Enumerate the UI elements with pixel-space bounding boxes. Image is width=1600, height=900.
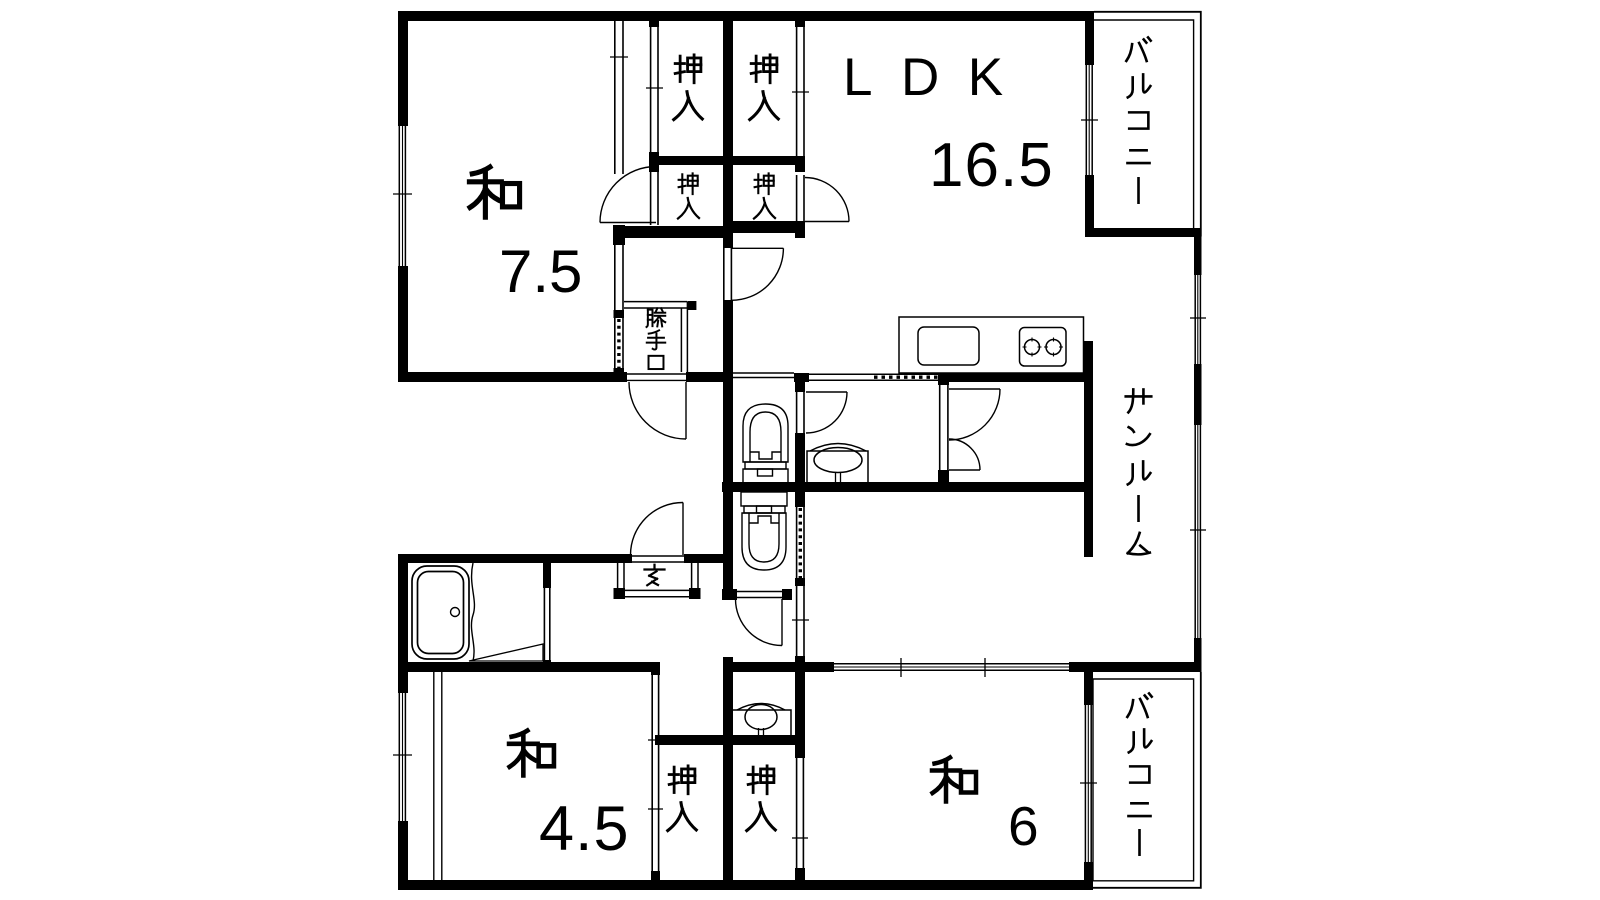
svg-text:4.5: 4.5 xyxy=(539,794,630,864)
svg-text:7.5: 7.5 xyxy=(499,238,582,305)
svg-text:16.5: 16.5 xyxy=(929,131,1054,200)
svg-text:LDK: LDK xyxy=(843,48,1032,107)
svg-text:6: 6 xyxy=(1008,795,1039,857)
